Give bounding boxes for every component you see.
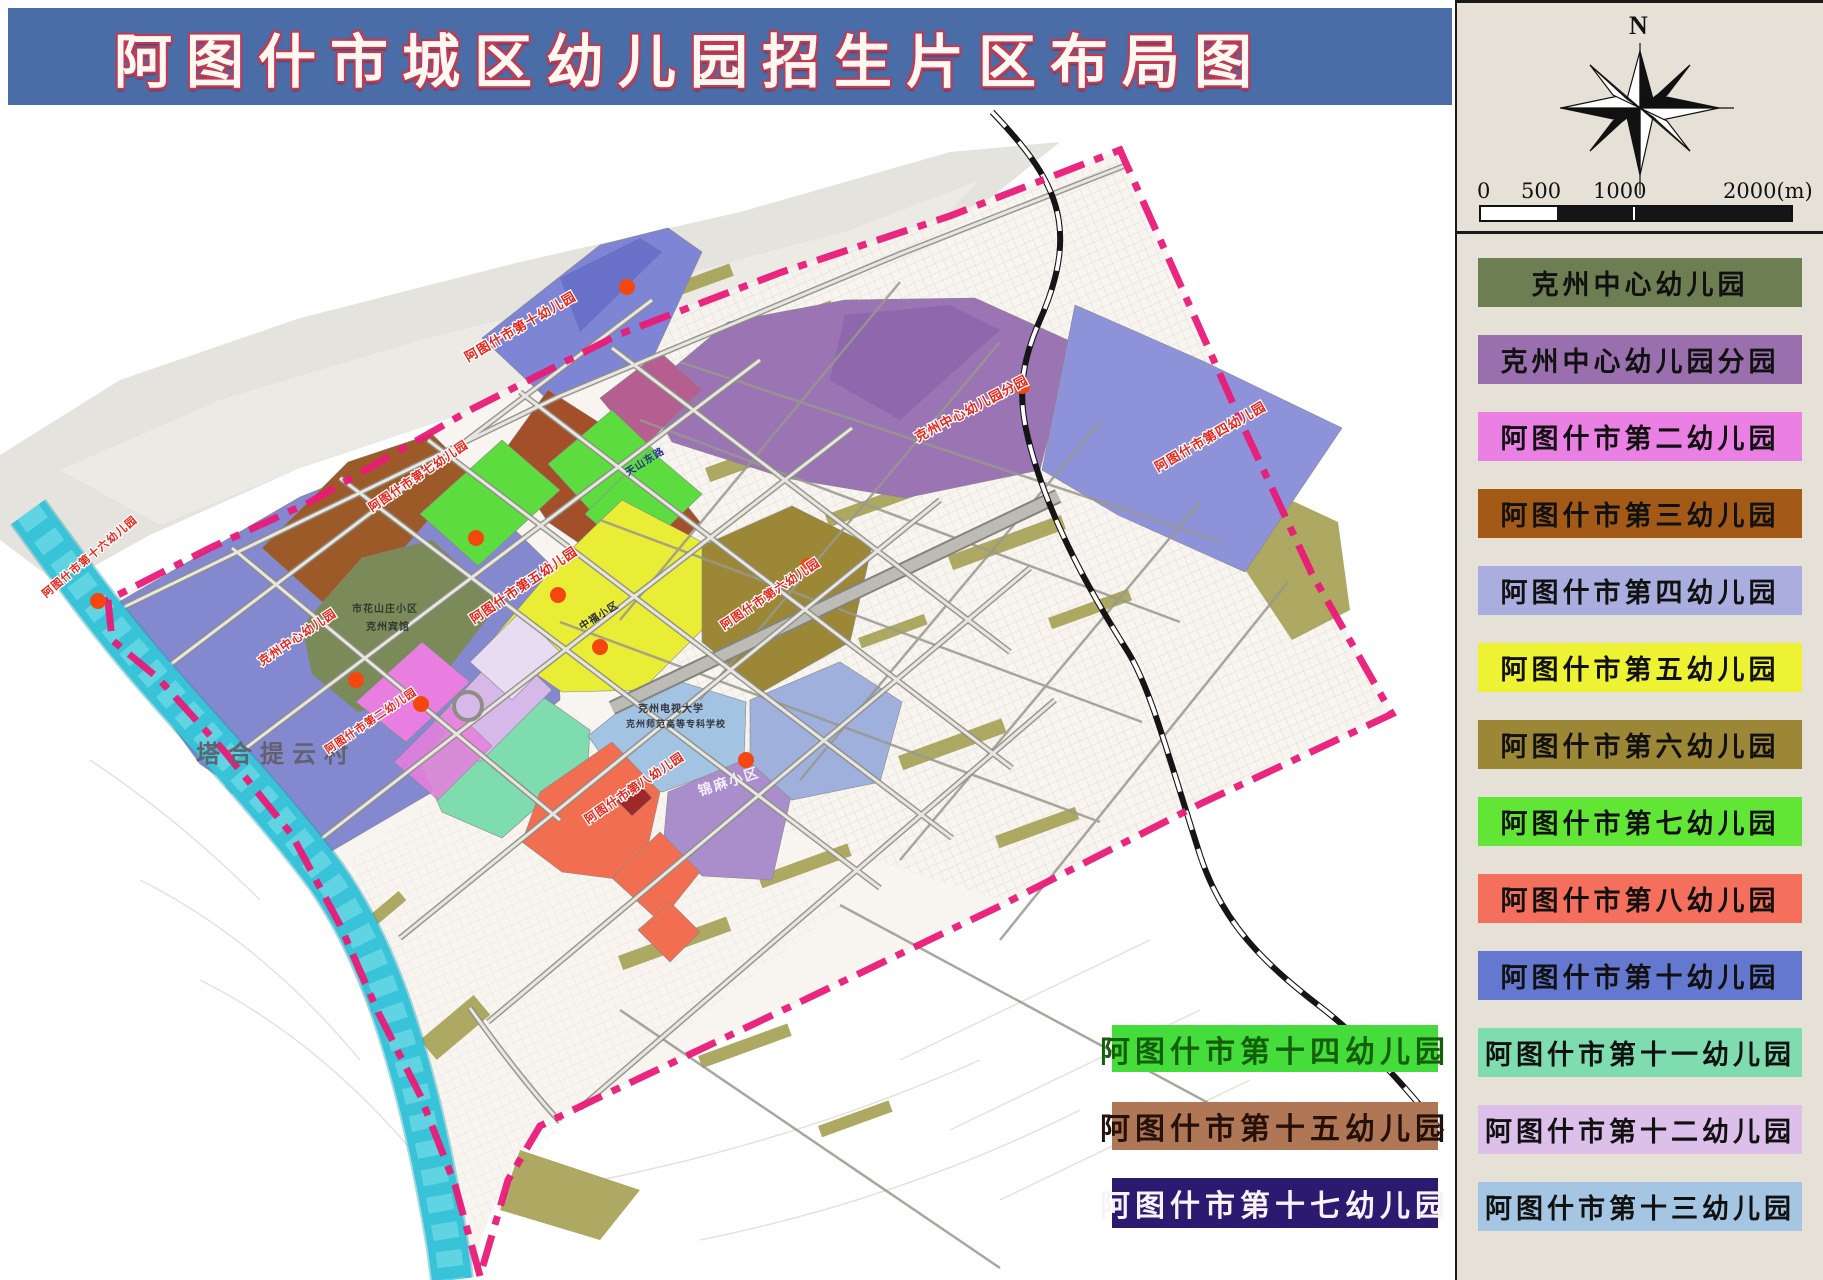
legend-item: 阿图什市第二幼儿园 bbox=[1478, 412, 1802, 461]
legend-item: 阿图什市第八幼儿园 bbox=[1478, 874, 1802, 923]
scale-segment bbox=[1557, 207, 1633, 220]
scale-segment bbox=[1481, 207, 1557, 220]
map-overlay-label: 阿图什市第十四幼儿园 bbox=[1112, 1025, 1438, 1072]
legend-item: 阿图什市第十幼儿园 bbox=[1478, 951, 1802, 1000]
title-banner: 阿图什市城区幼儿园招生片区布局图 bbox=[8, 8, 1452, 105]
map-overlay-label: 阿图什市第十七幼儿园 bbox=[1112, 1178, 1438, 1228]
place-label: 克州师范高等专科学校 bbox=[626, 718, 726, 729]
kindergarten-dot bbox=[619, 279, 635, 295]
legend-item: 阿图什市第十三幼儿园 bbox=[1478, 1182, 1802, 1231]
kindergarten-dot bbox=[592, 639, 608, 655]
legend-sidebar: N bbox=[1455, 0, 1823, 1280]
map-overlay-label: 阿图什市第十五幼儿园 bbox=[1112, 1102, 1438, 1150]
kindergarten-dot bbox=[468, 530, 484, 546]
map-canvas: 塔合提云村锦麻小区克州电视大学克州师范高等专科学校市花山庄小区克州宾馆中福小区天… bbox=[0, 0, 1455, 1280]
legend-item: 阿图什市第十二幼儿园 bbox=[1478, 1105, 1802, 1154]
kindergarten-dot bbox=[90, 593, 106, 609]
page: 塔合提云村锦麻小区克州电视大学克州师范高等专科学校市花山庄小区克州宾馆中福小区天… bbox=[0, 0, 1823, 1280]
page-title: 阿图什市城区幼儿园招生片区布局图 bbox=[114, 15, 1266, 99]
compass-rose-icon bbox=[1457, 3, 1823, 203]
legend-item: 阿图什市第七幼儿园 bbox=[1478, 797, 1802, 846]
scale-bar bbox=[1479, 205, 1793, 222]
scale-tick-500: 500 bbox=[1521, 179, 1561, 203]
kindergarten-dot bbox=[550, 587, 566, 603]
scale-segment bbox=[1633, 207, 1791, 220]
city-map-svg: 塔合提云村锦麻小区克州电视大学克州师范高等专科学校市花山庄小区克州宾馆中福小区天… bbox=[0, 0, 1455, 1280]
legend-item: 克州中心幼儿园分园 bbox=[1478, 335, 1802, 384]
place-label: 克州宾馆 bbox=[366, 620, 410, 633]
place-label: 克州电视大学 bbox=[638, 702, 704, 715]
legend-item: 阿图什市第四幼儿园 bbox=[1478, 566, 1802, 615]
legend-item: 克州中心幼儿园 bbox=[1478, 258, 1802, 307]
kindergarten-dot bbox=[738, 752, 754, 768]
scale-tick-1000: 1000 bbox=[1593, 179, 1646, 203]
sidebar-divider bbox=[1457, 231, 1823, 234]
kindergarten-dot bbox=[348, 672, 364, 688]
scale-tick-2000: 2000(m) bbox=[1723, 179, 1813, 203]
legend-item: 阿图什市第三幼儿园 bbox=[1478, 489, 1802, 538]
legend-item: 阿图什市第五幼儿园 bbox=[1478, 643, 1802, 692]
place-label: 市花山庄小区 bbox=[352, 602, 418, 615]
scale-tick-0: 0 bbox=[1477, 179, 1490, 203]
legend-item: 阿图什市第十一幼儿园 bbox=[1478, 1028, 1802, 1077]
legend-item: 阿图什市第六幼儿园 bbox=[1478, 720, 1802, 769]
